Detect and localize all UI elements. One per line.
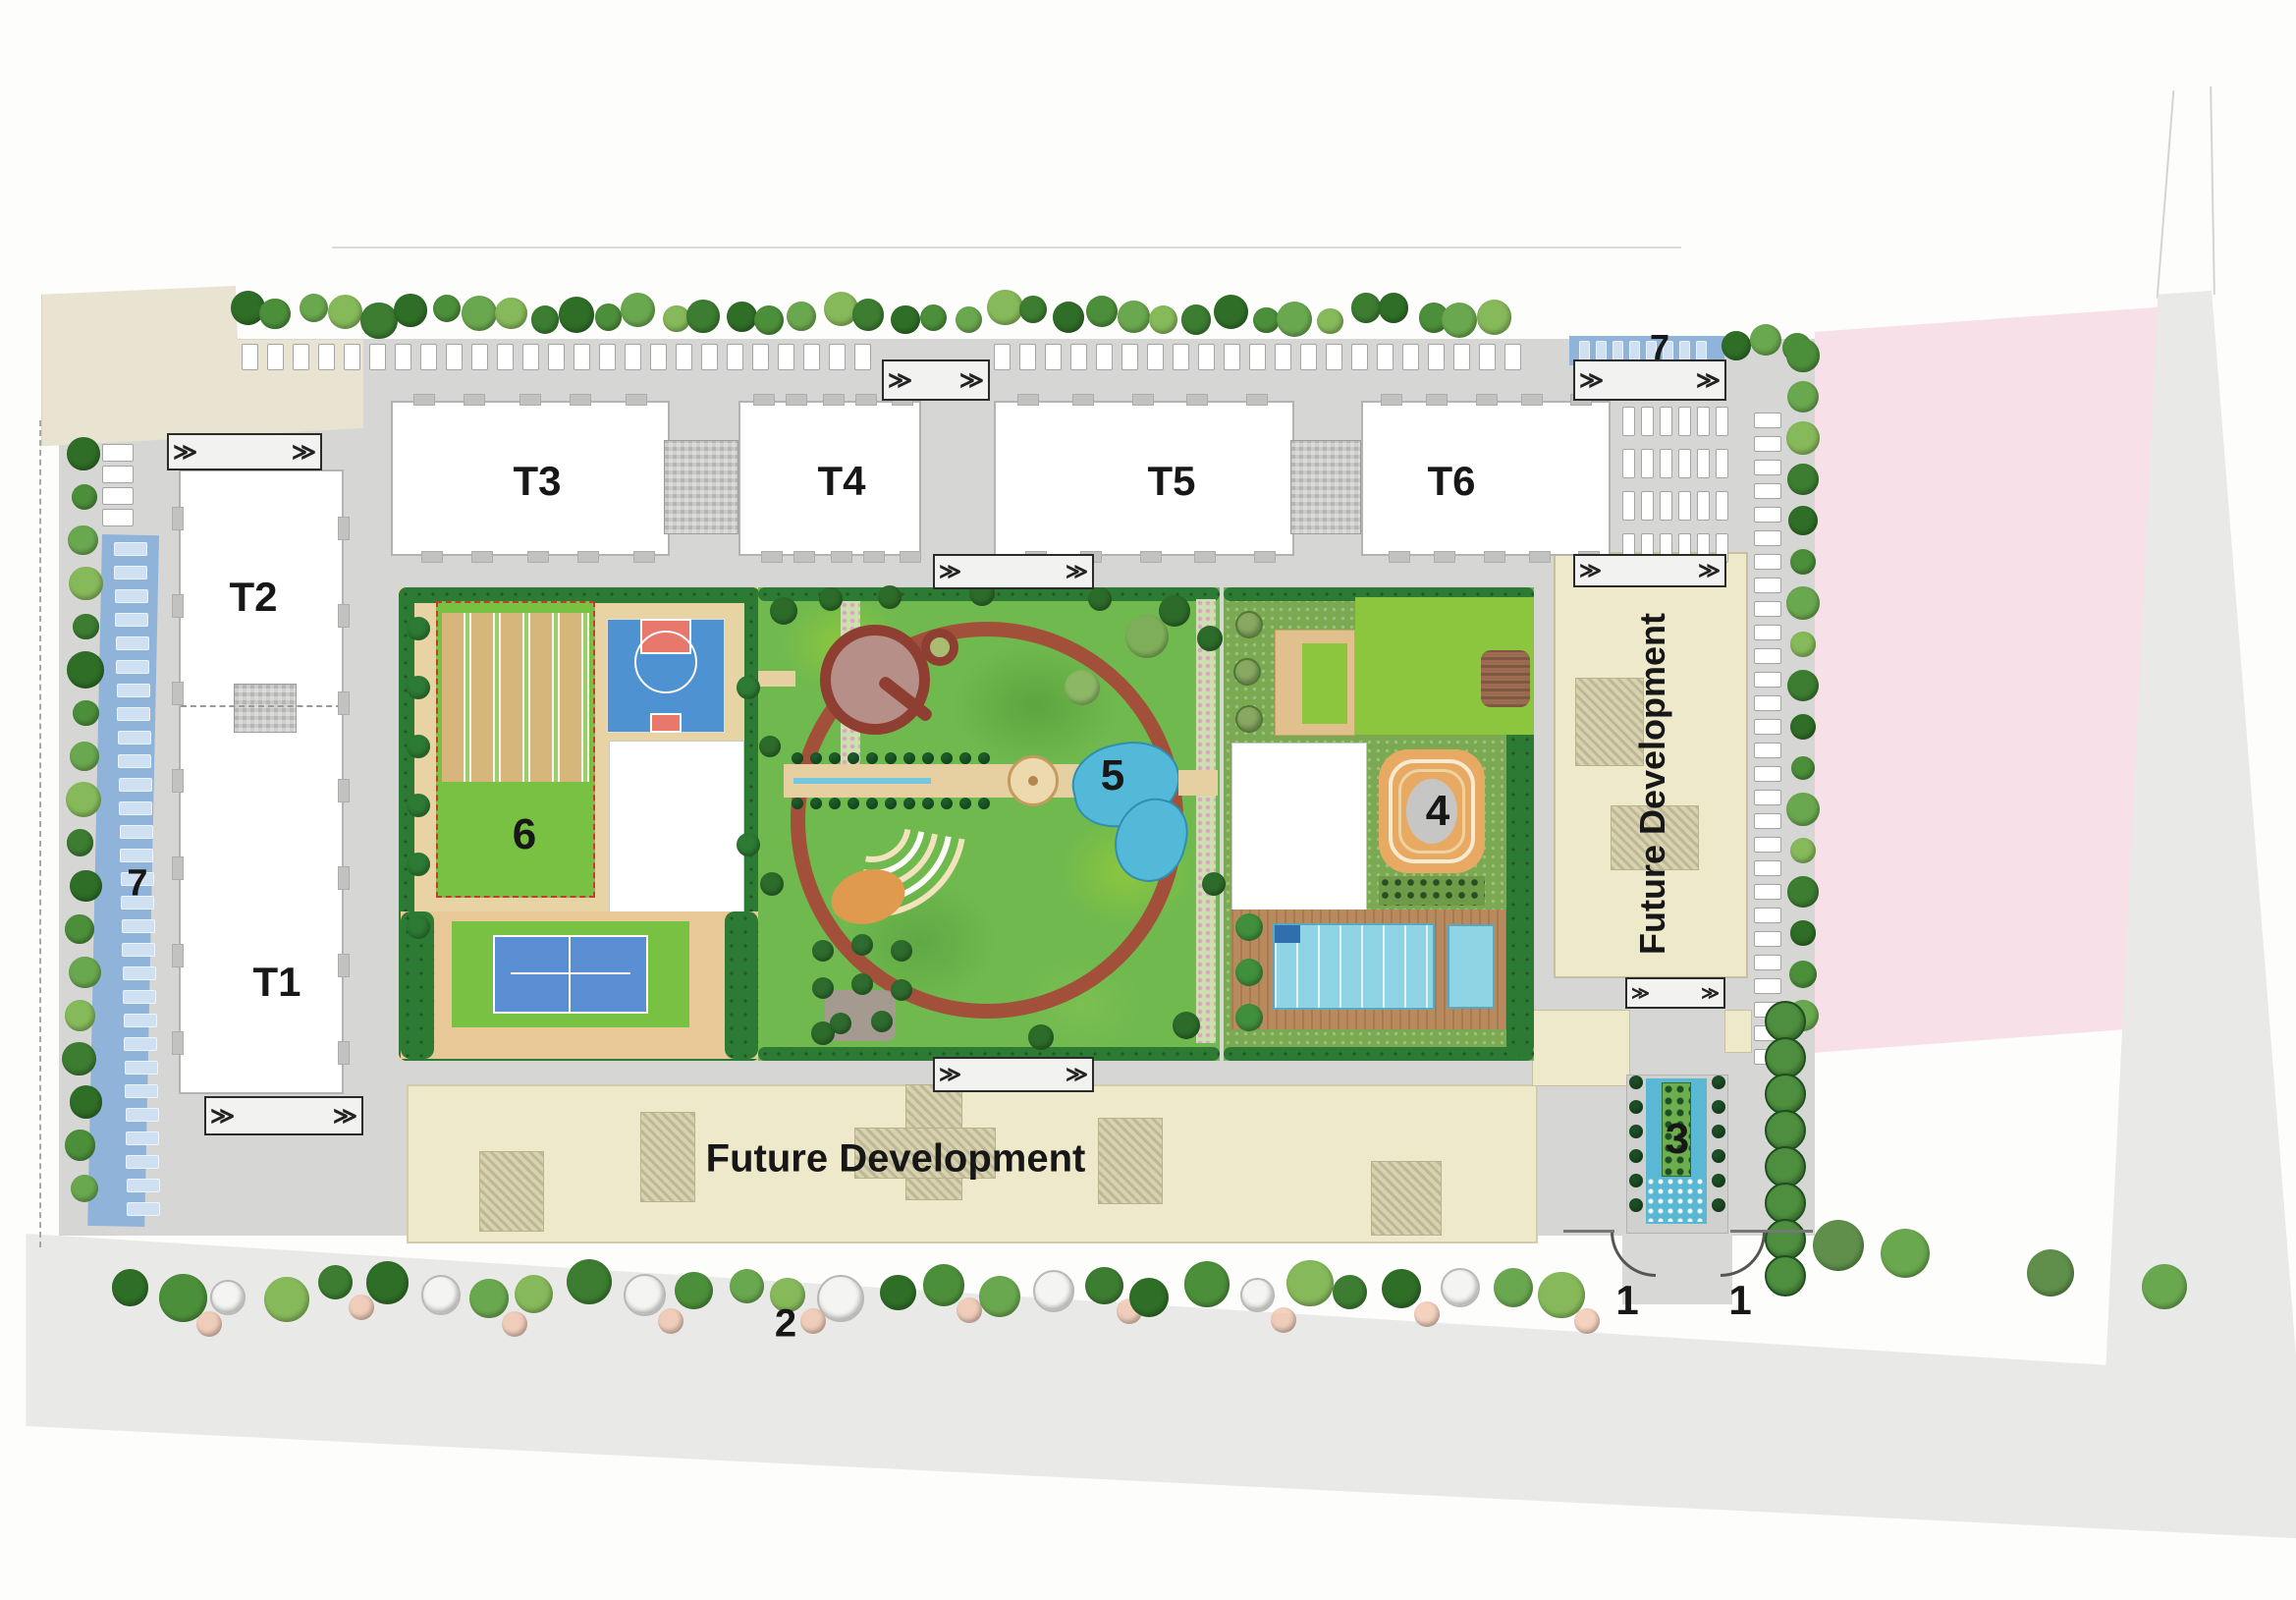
tree-icon — [210, 1280, 246, 1315]
facade-bump — [863, 551, 885, 563]
chevron-icon: ≫ — [173, 438, 197, 467]
driveway-ramp: ≫≫ — [167, 433, 322, 470]
tree-icon — [70, 1085, 103, 1119]
parking-stall — [1173, 344, 1189, 370]
tree-icon — [727, 302, 757, 332]
facade-bump — [831, 551, 852, 563]
parking-stall — [548, 344, 565, 370]
facade-bump — [172, 594, 184, 618]
parking-stall — [1019, 344, 1036, 370]
future-development-label-right: Future Development — [1632, 613, 1673, 955]
parking-stall — [446, 344, 463, 370]
tree-icon — [1765, 1183, 1806, 1224]
parking-stall — [123, 966, 156, 980]
tree-icon — [878, 585, 902, 609]
tree-icon — [1414, 1301, 1440, 1327]
tree-icon — [1790, 838, 1816, 863]
tree-icon — [866, 798, 878, 809]
boundary-wall — [1730, 1230, 1813, 1233]
tree-icon — [65, 1130, 95, 1160]
parking-stall — [1754, 625, 1781, 640]
tree-icon — [1765, 1146, 1806, 1187]
tree-icon — [65, 914, 93, 943]
facade-bump — [338, 954, 350, 977]
parking-stall — [395, 344, 411, 370]
parking-stall — [1679, 341, 1690, 360]
kids-pool — [1448, 924, 1495, 1009]
parking-stall — [1479, 344, 1496, 370]
parking-stall — [1754, 955, 1781, 970]
parking-stall — [701, 344, 718, 370]
tree-icon — [1233, 658, 1261, 686]
parking-stall — [1121, 344, 1138, 370]
tree-icon — [264, 1277, 309, 1322]
tower-label-t4: T4 — [817, 458, 865, 505]
chevron-icon: ≫ — [1701, 983, 1720, 1004]
tree-icon — [941, 798, 953, 809]
basketball-key-bottom — [650, 713, 682, 733]
facade-bump — [855, 394, 877, 406]
marker-1-left: 1 — [1615, 1277, 1638, 1324]
garden-pavilion — [820, 625, 930, 735]
tree-icon — [959, 752, 971, 764]
facade-bump — [1434, 551, 1455, 563]
parking-stall — [1660, 407, 1672, 436]
marker-2: 2 — [775, 1302, 796, 1347]
tree-icon — [770, 597, 797, 625]
tree-icon — [830, 1013, 851, 1034]
tower-core — [234, 684, 297, 733]
tree-icon — [469, 1279, 508, 1317]
parking-stall — [574, 344, 590, 370]
chevron-icon: ≫ — [888, 366, 912, 395]
parking-stall — [369, 344, 386, 370]
clubhouse-building — [1231, 743, 1367, 915]
tree-icon — [328, 295, 362, 329]
facade-bump — [338, 779, 350, 802]
parking-stall — [125, 1061, 158, 1075]
tower-core — [1290, 440, 1361, 534]
facade-bump — [421, 551, 443, 563]
parking-stall — [1377, 344, 1394, 370]
facade-bump — [761, 551, 783, 563]
tower-split-line — [181, 705, 342, 707]
tree-icon — [300, 294, 328, 322]
tower-label-t5: T5 — [1147, 458, 1195, 505]
parking-stall — [1504, 344, 1521, 370]
garden-entry-path — [758, 671, 795, 687]
tree-icon — [1019, 296, 1047, 323]
tree-icon — [923, 1264, 965, 1306]
tennis-court-blue — [493, 935, 648, 1014]
tree-icon — [1765, 1255, 1806, 1297]
tree-icon — [1065, 670, 1100, 705]
parking-stall — [994, 344, 1011, 370]
chevron-icon: ≫ — [939, 559, 961, 584]
facade-bump — [577, 551, 599, 563]
future-building-core — [640, 1112, 695, 1202]
tree-icon — [1787, 670, 1819, 701]
tree-icon — [891, 979, 912, 1001]
outer-road-bottom — [24, 1234, 2296, 1540]
parking-stall — [120, 825, 153, 839]
tree-icon — [866, 752, 878, 764]
tree-icon — [903, 798, 915, 809]
parking-stall — [1678, 491, 1691, 521]
tree-icon — [852, 299, 885, 331]
tree-icon — [1750, 324, 1781, 356]
tree-icon — [1629, 1174, 1643, 1187]
future-development-stub — [1724, 1010, 1752, 1053]
parking-stall — [599, 344, 616, 370]
tree-icon — [531, 305, 560, 334]
tree-icon — [885, 798, 897, 809]
tree-icon — [73, 614, 98, 639]
facade-bump — [464, 394, 485, 406]
parking-stall — [854, 344, 871, 370]
facade-bump — [626, 394, 647, 406]
parking-stall — [1641, 491, 1654, 521]
chevron-icon: ≫ — [292, 438, 316, 467]
tree-icon — [407, 617, 430, 640]
parking-stall — [1660, 449, 1672, 478]
parking-stall — [1096, 344, 1113, 370]
tree-icon — [1787, 464, 1818, 494]
promenade-east — [1178, 770, 1218, 796]
tree-icon — [1790, 549, 1816, 575]
tree-icon — [847, 752, 859, 764]
parking-stall — [1300, 344, 1317, 370]
marker-7-left: 7 — [127, 863, 147, 906]
parking-stall — [1754, 436, 1781, 452]
facade-bump — [793, 551, 815, 563]
parking-stall — [1754, 483, 1781, 499]
parking-stall — [1045, 344, 1062, 370]
facade-bump — [1194, 551, 1216, 563]
cricket-practice-lanes — [442, 613, 589, 782]
parking-stall — [829, 344, 846, 370]
tree-icon — [1786, 339, 1819, 371]
tree-icon — [407, 735, 430, 758]
tree-icon — [73, 700, 99, 727]
tree-icon — [559, 297, 595, 333]
tower-core — [664, 440, 738, 534]
parking-stall — [1622, 449, 1635, 478]
parking-stall — [1596, 341, 1607, 360]
tree-icon — [70, 870, 102, 903]
tree-icon — [1629, 1198, 1643, 1212]
tree-icon — [812, 940, 834, 962]
tree-icon — [462, 296, 497, 331]
tree-icon — [956, 306, 982, 333]
parking-stall — [1754, 743, 1781, 758]
tree-icon — [922, 752, 934, 764]
parking-stall — [318, 344, 335, 370]
parking-stall — [497, 344, 514, 370]
facade-bump — [753, 394, 775, 406]
facade-bump — [338, 1041, 350, 1065]
tree-icon — [829, 752, 841, 764]
facade-bump — [1389, 551, 1410, 563]
tree-icon — [1181, 304, 1212, 335]
tree-icon — [851, 934, 873, 956]
tree-icon — [1118, 301, 1149, 332]
marker-6: 6 — [513, 810, 536, 859]
parking-stall — [1754, 719, 1781, 735]
parking-stall — [1697, 449, 1710, 478]
future-building-core — [479, 1151, 544, 1232]
pebble-path — [1196, 599, 1216, 1043]
facade-bump — [172, 1031, 184, 1055]
gate-arc-right — [1721, 1232, 1766, 1277]
fountain-center — [1028, 776, 1038, 786]
marker-3: 3 — [1666, 1115, 1689, 1164]
tree-icon — [1235, 611, 1263, 638]
tree-icon — [1712, 1125, 1725, 1138]
facade-bump — [172, 507, 184, 530]
parking-stall — [124, 1037, 157, 1051]
tree-icon — [903, 752, 915, 764]
facade-bump — [519, 394, 541, 406]
parking-stall — [1249, 344, 1266, 370]
parking-stall — [1754, 790, 1781, 805]
tree-icon — [754, 305, 784, 335]
marker-5: 5 — [1101, 751, 1124, 800]
facade-bump — [172, 682, 184, 705]
driveway-ramp: ≫≫ — [882, 359, 990, 401]
facade-bump — [633, 551, 655, 563]
tree-icon — [922, 798, 934, 809]
tree-icon — [1494, 1268, 1533, 1307]
tree-icon — [366, 1261, 410, 1304]
gate-arc-left — [1611, 1232, 1656, 1277]
tree-icon — [686, 300, 719, 332]
tree-icon — [67, 437, 100, 470]
facade-bump — [338, 517, 350, 540]
water-channel — [793, 778, 931, 784]
parking-stall — [115, 589, 148, 603]
parking-stall — [1754, 672, 1781, 688]
chevron-icon: ≫ — [1066, 1062, 1088, 1087]
tree-icon — [349, 1295, 374, 1320]
tree-icon — [675, 1272, 713, 1310]
tree-icon — [1235, 959, 1263, 986]
tree-icon — [1317, 308, 1343, 335]
driveway-ramp: ≫≫ — [204, 1096, 363, 1135]
future-building-core — [1098, 1118, 1163, 1204]
parking-stall — [1224, 344, 1240, 370]
tree-icon — [1765, 1037, 1806, 1078]
parking-stall — [267, 344, 284, 370]
facade-bump — [786, 394, 807, 406]
seating-deck — [1481, 650, 1530, 707]
facade-bump — [338, 866, 350, 890]
chevron-icon: ≫ — [959, 366, 984, 395]
tree-icon — [421, 1275, 461, 1314]
facade-bump — [338, 604, 350, 628]
tree-icon — [792, 752, 803, 764]
tree-icon — [621, 293, 655, 327]
parking-stall — [120, 849, 153, 862]
future-building-core — [1371, 1161, 1442, 1236]
tree-icon — [759, 736, 781, 757]
parking-stall — [1754, 766, 1781, 782]
tree-icon — [978, 798, 990, 809]
parking-stall — [1641, 407, 1654, 436]
chevron-icon: ≫ — [333, 1102, 357, 1131]
facade-bump — [1381, 394, 1402, 406]
tree-icon — [1053, 302, 1084, 333]
tree-icon — [1351, 293, 1381, 322]
tree-icon — [259, 299, 291, 330]
tree-icon — [920, 304, 947, 331]
tree-icon — [1787, 381, 1819, 413]
tree-icon — [737, 833, 760, 856]
hedge-strip — [725, 911, 758, 1059]
parking-stall — [471, 344, 488, 370]
tree-icon — [1629, 1149, 1643, 1163]
garden-pavilion-small — [921, 629, 958, 666]
parking-stall — [116, 660, 149, 674]
tree-icon — [1722, 331, 1751, 360]
parking-stall — [1453, 344, 1470, 370]
tree-icon — [978, 752, 990, 764]
parking-stall — [1070, 344, 1087, 370]
parking-stall — [1629, 341, 1640, 360]
facade-bump — [570, 394, 591, 406]
basketball-arc — [634, 631, 697, 693]
parking-stall — [127, 1202, 160, 1216]
tree-icon — [1125, 615, 1169, 658]
facade-bump — [1132, 394, 1154, 406]
parking-stall — [1754, 601, 1781, 617]
parking-stall — [126, 1131, 159, 1145]
facade-bump — [1426, 394, 1448, 406]
north-boundary-line — [332, 247, 1681, 248]
flower-bed — [1379, 876, 1485, 906]
facade-bump — [172, 944, 184, 967]
master-plan-canvas: ≫≫ ≫≫ ≫≫ ≫≫ ≫≫ ≫≫ ≫≫ ≫≫ T3 T4 T5 T6 T2 T… — [0, 0, 2296, 1600]
tree-icon — [959, 798, 971, 809]
tree-icon — [67, 829, 94, 856]
chevron-icon: ≫ — [1631, 983, 1650, 1004]
parking-stall — [117, 707, 150, 721]
parking-stall — [1579, 341, 1590, 360]
tree-icon — [1629, 1076, 1643, 1089]
tree-icon — [1442, 303, 1477, 338]
facade-bump — [1140, 551, 1162, 563]
tree-icon — [502, 1311, 527, 1337]
chevron-icon: ≫ — [1066, 559, 1088, 584]
tree-icon — [1712, 1100, 1725, 1114]
parking-stall — [1754, 860, 1781, 876]
tree-icon — [1441, 1268, 1480, 1307]
tree-icon — [941, 752, 953, 764]
tree-icon — [1129, 1278, 1169, 1317]
parking-stall — [102, 487, 134, 505]
parking-stall — [1754, 460, 1781, 475]
tree-icon — [360, 303, 398, 340]
hedge-strip — [1224, 1047, 1534, 1061]
parking-stall — [118, 754, 151, 768]
parking-stall — [1716, 491, 1728, 521]
parking-stall — [102, 444, 134, 462]
tree-icon — [1033, 1270, 1074, 1311]
facade-bump — [1476, 394, 1498, 406]
facade-bump — [1484, 551, 1505, 563]
marker-7-top-right: 7 — [1650, 327, 1669, 368]
parking-stall — [1147, 344, 1164, 370]
parking-stall — [1678, 449, 1691, 478]
parking-stall — [1754, 530, 1781, 546]
tree-icon — [1787, 876, 1818, 907]
parking-stall — [123, 990, 156, 1004]
tree-icon — [851, 973, 873, 995]
tree-icon — [1382, 1269, 1421, 1308]
tree-icon — [1786, 421, 1819, 454]
road-edge-line — [2210, 86, 2215, 295]
parking-stall — [1428, 344, 1445, 370]
tree-icon — [595, 303, 623, 331]
tree-icon — [1790, 920, 1815, 945]
driveway-ramp: ≫≫ — [1625, 977, 1725, 1009]
tree-icon — [880, 1275, 915, 1310]
parking-stall — [1754, 554, 1781, 570]
tree-icon — [891, 305, 919, 334]
tree-icon — [812, 977, 834, 999]
tree-icon — [810, 798, 822, 809]
chevron-icon: ≫ — [1579, 558, 1602, 583]
tree-icon — [407, 915, 430, 939]
tree-icon — [760, 872, 784, 896]
facade-bump — [338, 691, 350, 715]
parking-stall — [420, 344, 437, 370]
parking-stall — [1622, 407, 1635, 436]
future-development-label-bottom: Future Development — [706, 1137, 1086, 1182]
parking-stall — [727, 344, 743, 370]
tree-icon — [1712, 1198, 1725, 1212]
entrance-water-jets — [1646, 1177, 1707, 1222]
tree-icon — [1712, 1149, 1725, 1163]
parking-stall — [102, 466, 134, 483]
tree-icon — [737, 676, 760, 699]
tree-icon — [1085, 1267, 1122, 1304]
parking-stall — [1754, 648, 1781, 664]
podium-crossing: ≫≫ — [933, 554, 1094, 589]
tree-icon — [810, 752, 822, 764]
facade-bump — [1529, 551, 1551, 563]
parking-stall — [1697, 407, 1710, 436]
marker-1-right: 1 — [1728, 1277, 1751, 1324]
facade-bump — [413, 394, 435, 406]
tree-icon — [1240, 1278, 1275, 1312]
parking-stall — [126, 1155, 159, 1169]
chevron-icon: ≫ — [1698, 558, 1721, 583]
parking-stall — [1754, 695, 1781, 711]
tree-icon — [1574, 1308, 1600, 1334]
road-edge-line — [2157, 90, 2175, 299]
tower-t6-footprint — [1361, 401, 1611, 556]
facade-bump — [823, 394, 845, 406]
tree-icon — [819, 587, 843, 611]
tower-label-t2: T2 — [229, 574, 277, 621]
parking-stall — [117, 684, 150, 697]
parking-stall — [344, 344, 360, 370]
tennis-service-line — [511, 972, 630, 974]
parking-stall — [118, 731, 151, 745]
tree-icon — [67, 651, 104, 689]
parking-stall — [126, 1108, 159, 1122]
